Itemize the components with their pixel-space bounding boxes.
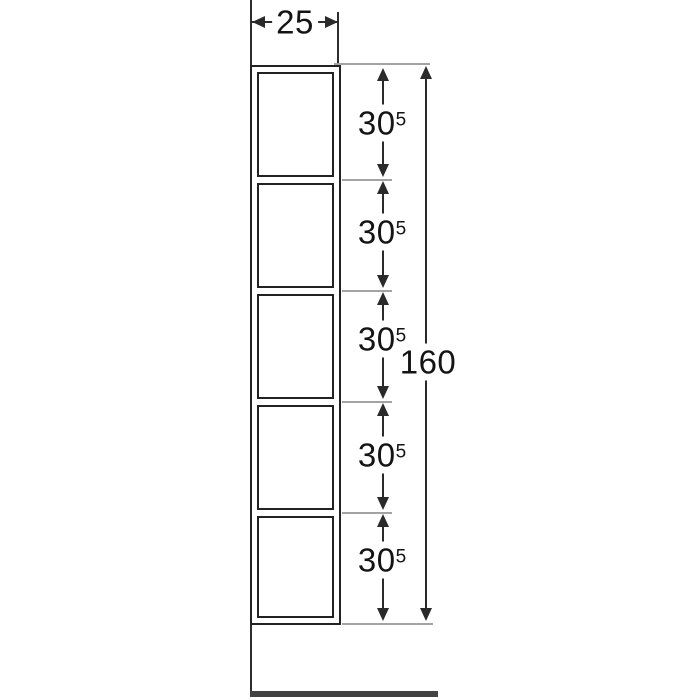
arrow-down-icon — [420, 608, 432, 621]
arrow-left-icon — [252, 16, 265, 28]
dim-sup: 5 — [396, 110, 407, 131]
dim-value: 160 — [400, 344, 457, 381]
compartment-dim-label: 305 — [354, 214, 410, 251]
dim-value: 30 — [358, 214, 396, 251]
dim-sup: 5 — [396, 442, 407, 463]
shelf-compartment — [257, 72, 334, 177]
compartment-dim-label: 305 — [354, 542, 410, 579]
dim-sup: 5 — [396, 219, 407, 240]
arrow-down-icon — [377, 164, 389, 177]
arrow-down-icon — [377, 275, 389, 288]
extension-line-top — [334, 63, 430, 65]
dim-value: 30 — [358, 437, 396, 474]
dim-sup: 5 — [396, 547, 407, 568]
total-height-dim-label: 160 — [396, 344, 461, 381]
arrow-down-icon — [377, 386, 389, 399]
arrow-down-icon — [377, 608, 389, 621]
dim-value: 25 — [276, 4, 314, 41]
width-dim-label: 25 — [272, 4, 318, 41]
dim-value: 30 — [358, 321, 396, 358]
compartment-dim-label: 305 — [354, 437, 410, 474]
shelf-compartment — [257, 405, 334, 510]
shelf-compartment — [257, 516, 334, 618]
arrow-down-icon — [377, 497, 389, 510]
arrow-right-icon — [325, 16, 338, 28]
compartment-dim-label: 305 — [354, 105, 410, 142]
shelf-compartment — [257, 294, 334, 399]
extension-line-bottom — [342, 623, 433, 625]
dimension-drawing: 25 305 305 305 — [0, 0, 700, 700]
dim-value: 30 — [358, 105, 396, 142]
shelf-compartment — [257, 183, 334, 288]
floor-line — [250, 691, 438, 697]
dim-value: 30 — [358, 542, 396, 579]
